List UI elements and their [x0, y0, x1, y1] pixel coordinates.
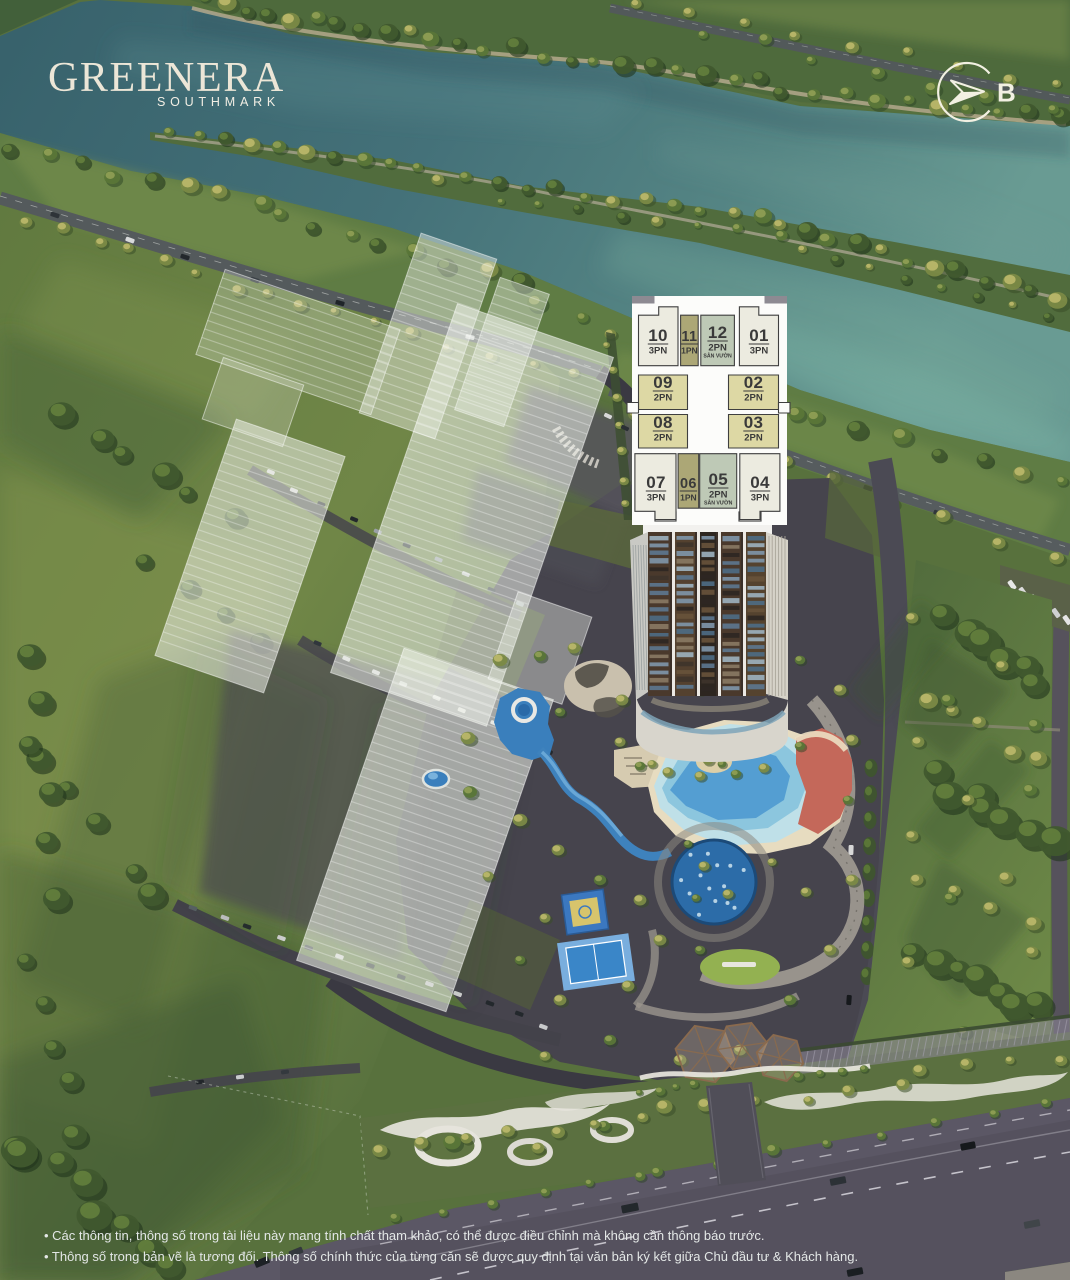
svg-text:11: 11 [681, 329, 697, 345]
svg-text:12: 12 [708, 323, 728, 342]
svg-text:• Thông số trong bản vẽ là tươ: • Thông số trong bản vẽ là tương đối. Th… [44, 1249, 858, 1264]
svg-text:08: 08 [653, 413, 673, 432]
svg-text:3PN: 3PN [647, 493, 666, 504]
svg-text:2PN: 2PN [709, 490, 728, 501]
svg-text:02: 02 [744, 373, 764, 392]
svg-text:06: 06 [680, 476, 697, 492]
svg-text:2PN: 2PN [654, 393, 673, 404]
svg-text:01: 01 [749, 326, 769, 345]
svg-text:2PN: 2PN [708, 343, 727, 354]
svg-text:05: 05 [708, 470, 728, 489]
svg-text:2PN: 2PN [744, 393, 763, 404]
svg-text:SÂN VƯỜN: SÂN VƯỜN [703, 352, 732, 360]
svg-text:2PN: 2PN [744, 433, 763, 444]
svg-text:• Các thông tin, thông số tron: • Các thông tin, thông số trong tài liệu… [44, 1228, 765, 1243]
svg-text:2PN: 2PN [654, 433, 673, 444]
svg-text:1PN: 1PN [680, 493, 697, 503]
svg-text:04: 04 [750, 473, 770, 492]
svg-text:SÂN VƯỜN: SÂN VƯỜN [704, 499, 733, 507]
svg-text:3PN: 3PN [750, 346, 769, 357]
svg-text:B: B [997, 78, 1016, 108]
svg-text:1PN: 1PN [681, 346, 698, 356]
svg-text:09: 09 [653, 373, 673, 392]
svg-text:3PN: 3PN [649, 346, 668, 357]
svg-text:10: 10 [648, 326, 668, 345]
svg-text:03: 03 [744, 413, 764, 432]
svg-text:07: 07 [646, 473, 666, 492]
svg-text:SOUTHMARK: SOUTHMARK [157, 95, 280, 109]
svg-text:3PN: 3PN [751, 493, 770, 504]
